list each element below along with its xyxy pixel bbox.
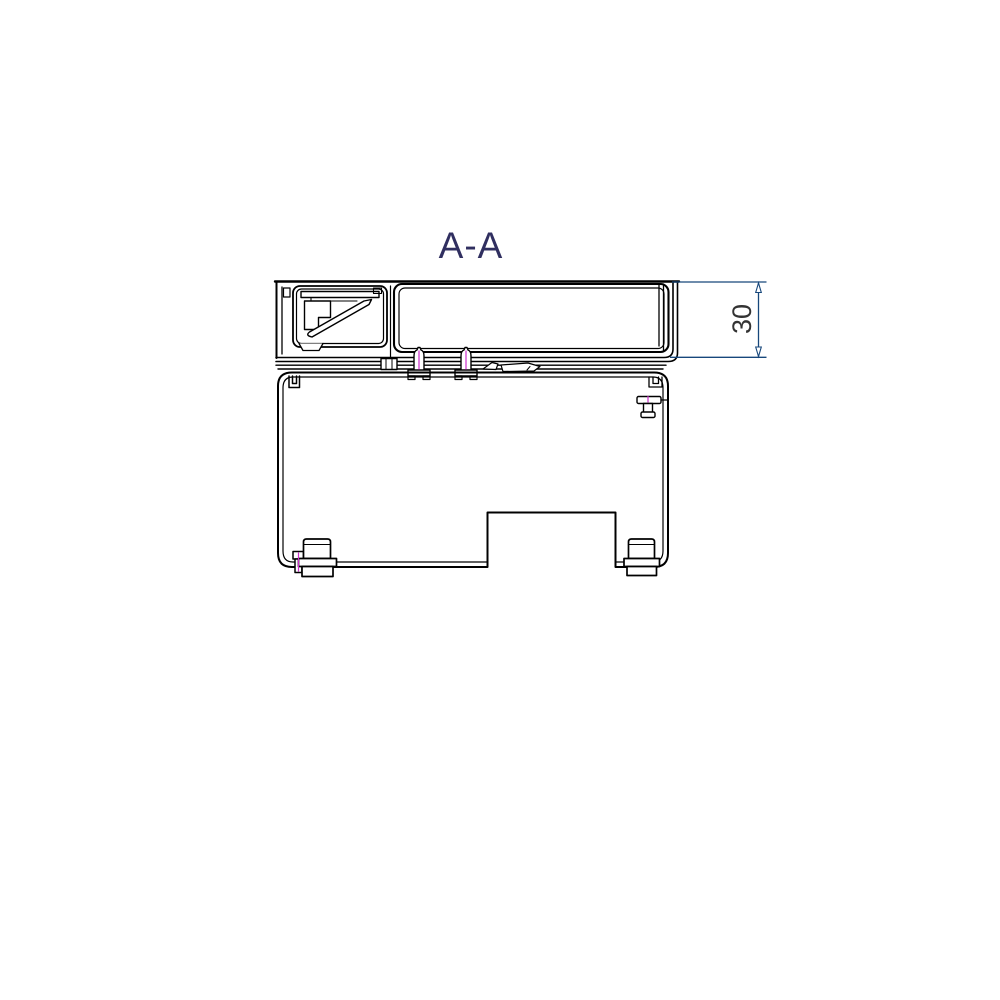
drawing-canvas: 30 A-A <box>0 0 1000 1000</box>
joint-lever-pieces <box>483 363 540 372</box>
dimension-value: 30 <box>727 304 757 334</box>
arrowhead-down-icon <box>756 347 762 357</box>
centerline-group <box>299 351 649 571</box>
latch-compartment <box>293 286 387 351</box>
right-compartment <box>394 284 669 352</box>
arrowhead-up-icon <box>756 283 762 293</box>
mounting-foot-left <box>293 539 337 577</box>
mounting-foot-right <box>624 539 660 576</box>
section-view-label: A-A <box>439 225 504 266</box>
section-view-drawing: 30 A-A <box>0 0 1000 1000</box>
part-outline-group <box>275 282 679 577</box>
main-body <box>278 373 668 568</box>
